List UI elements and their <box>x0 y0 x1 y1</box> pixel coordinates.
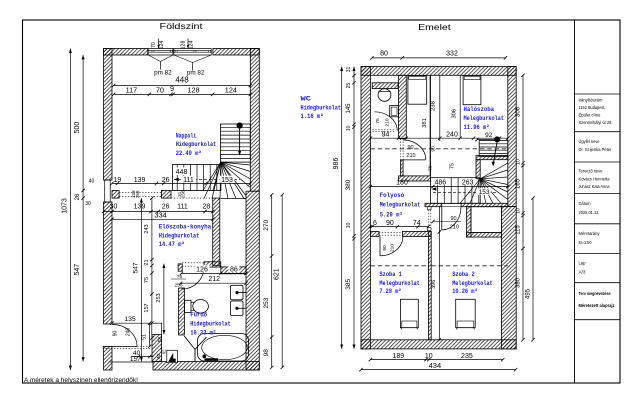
svg-text:98: 98 <box>263 349 270 357</box>
svg-text:500: 500 <box>74 122 81 134</box>
svg-text:75: 75 <box>144 277 150 283</box>
svg-text:180: 180 <box>396 179 408 186</box>
svg-text:256: 256 <box>181 190 186 198</box>
svg-text:Dr. Szijenka Péter: Dr. Szijenka Péter <box>579 147 612 152</box>
svg-text:A méretek a helyszínen ellenőr: A méretek a helyszínen ellenőrizendők! <box>24 377 138 384</box>
svg-text:111: 111 <box>177 203 188 210</box>
svg-text:157: 157 <box>144 303 150 312</box>
svg-text:111: 111 <box>183 177 194 184</box>
svg-text:WC: WC <box>301 95 312 102</box>
svg-text:Földszint: Földszint <box>160 21 204 31</box>
svg-text:139: 139 <box>134 203 146 210</box>
svg-text:210: 210 <box>390 244 396 252</box>
svg-text:51: 51 <box>142 334 148 340</box>
svg-text:Terv megnevezése: Terv megnevezése <box>579 291 611 296</box>
svg-text:26: 26 <box>162 203 170 210</box>
svg-text:5.29 m²: 5.29 m² <box>380 212 403 219</box>
svg-text:448: 448 <box>176 169 188 176</box>
svg-text:2025.01.13.: 2025.01.13. <box>579 210 600 215</box>
svg-text:210: 210 <box>450 225 459 231</box>
svg-text:A/3: A/3 <box>579 270 587 275</box>
svg-text:Hidegburkolat: Hidegburkolat <box>301 104 342 111</box>
svg-text:10: 10 <box>515 208 521 214</box>
svg-text:40: 40 <box>156 354 161 360</box>
svg-text:26: 26 <box>75 193 81 200</box>
svg-text:Lap: Lap <box>579 261 586 266</box>
svg-text:263: 263 <box>462 179 474 186</box>
svg-text:Melegburkolat: Melegburkolat <box>464 115 505 122</box>
svg-text:Juhász Kata Anna: Juhász Kata Anna <box>579 184 610 189</box>
svg-text:31: 31 <box>346 67 352 73</box>
svg-text:Dátum: Dátum <box>579 201 591 206</box>
svg-text:10: 10 <box>515 159 521 165</box>
svg-text:Hidegburkolat: Hidegburkolat <box>176 141 217 148</box>
svg-text:256: 256 <box>135 190 140 198</box>
svg-text:434: 434 <box>429 361 442 370</box>
svg-text:253: 253 <box>263 297 270 308</box>
svg-text:6: 6 <box>373 220 377 227</box>
svg-text:253: 253 <box>156 293 162 302</box>
svg-text:495: 495 <box>525 288 531 299</box>
svg-text:486: 486 <box>434 179 446 186</box>
svg-text:153: 153 <box>221 177 233 184</box>
svg-text:26: 26 <box>162 177 170 184</box>
svg-text:92: 92 <box>162 349 167 354</box>
svg-text:547: 547 <box>133 262 140 273</box>
svg-text:246: 246 <box>125 328 131 337</box>
svg-text:128: 128 <box>187 86 199 95</box>
svg-text:7.28 m²: 7.28 m² <box>379 288 401 295</box>
svg-text:Melegburkolat: Melegburkolat <box>379 280 420 287</box>
svg-text:Hidegburkolat: Hidegburkolat <box>159 232 200 239</box>
svg-text:124: 124 <box>188 41 194 50</box>
svg-text:1073: 1073 <box>62 198 69 214</box>
svg-text:124: 124 <box>225 86 237 95</box>
svg-text:Szoba 1: Szoba 1 <box>379 271 402 278</box>
svg-text:14.47 m²: 14.47 m² <box>159 241 185 248</box>
svg-text:334: 334 <box>154 211 167 220</box>
svg-text:Nappali: Nappali <box>176 133 197 140</box>
svg-text:306: 306 <box>452 109 458 119</box>
svg-text:74: 74 <box>413 220 421 227</box>
svg-text:124: 124 <box>159 41 165 50</box>
svg-text:94: 94 <box>382 131 390 138</box>
svg-text:86: 86 <box>230 267 238 274</box>
svg-text:19: 19 <box>114 177 122 184</box>
svg-text:165: 165 <box>515 178 521 189</box>
svg-text:621: 621 <box>274 268 281 280</box>
svg-text:Irányítószám: Irányítószám <box>579 98 603 103</box>
svg-text:212: 212 <box>208 276 220 283</box>
svg-text:28: 28 <box>203 203 211 210</box>
svg-text:75: 75 <box>375 118 381 124</box>
svg-text:70: 70 <box>151 42 157 48</box>
svg-text:Fürdő: Fürdő <box>190 312 207 319</box>
svg-text:986: 986 <box>333 158 340 170</box>
svg-text:90: 90 <box>407 145 413 151</box>
svg-text:380: 380 <box>345 179 352 190</box>
svg-text:55: 55 <box>428 165 434 171</box>
svg-text:128: 128 <box>181 41 187 50</box>
svg-text:30: 30 <box>85 201 91 207</box>
svg-text:11.96 m²: 11.96 m² <box>464 124 490 131</box>
svg-text:Szentmihályi út 29.: Szentmihályi út 29. <box>579 120 613 125</box>
svg-text:10: 10 <box>425 353 433 360</box>
svg-text:135: 135 <box>124 316 136 323</box>
svg-text:1.16 m²: 1.16 m² <box>301 113 324 120</box>
svg-text:385: 385 <box>345 278 352 289</box>
svg-text:90: 90 <box>430 146 436 152</box>
svg-text:Melegburkolat: Melegburkolat <box>452 280 493 287</box>
svg-text:58: 58 <box>158 337 164 343</box>
svg-text:270: 270 <box>263 219 270 230</box>
svg-text:9: 9 <box>170 84 174 93</box>
svg-text:117: 117 <box>126 86 138 95</box>
svg-text:90: 90 <box>382 245 388 251</box>
svg-text:126: 126 <box>196 267 208 274</box>
svg-text:10: 10 <box>346 125 352 131</box>
svg-text:90: 90 <box>113 331 119 337</box>
svg-text:70: 70 <box>156 86 164 95</box>
svg-text:380: 380 <box>515 277 521 288</box>
svg-text:75: 75 <box>449 163 455 169</box>
svg-text:40: 40 <box>89 179 95 185</box>
svg-text:396: 396 <box>431 280 437 289</box>
svg-text:90: 90 <box>386 220 394 227</box>
svg-text:Tervező neve: Tervező neve <box>579 169 603 174</box>
svg-text:pm 82: pm 82 <box>154 70 172 77</box>
svg-text:10.33 m²: 10.33 m² <box>190 330 216 337</box>
svg-text:Folyosó: Folyosó <box>380 192 405 199</box>
svg-text:210: 210 <box>385 118 391 126</box>
svg-text:448: 448 <box>175 76 189 85</box>
svg-text:25: 25 <box>346 83 352 89</box>
svg-text:381: 381 <box>422 118 428 128</box>
svg-text:Hálószoba: Hálószoba <box>464 106 495 113</box>
svg-text:10.26 m²: 10.26 m² <box>452 288 478 295</box>
svg-text:115: 115 <box>515 225 521 235</box>
svg-text:547: 547 <box>74 264 81 276</box>
svg-text:21: 21 <box>144 259 150 265</box>
svg-text:243: 243 <box>144 224 150 233</box>
svg-text:pm 82: pm 82 <box>187 70 205 77</box>
svg-text:10: 10 <box>346 222 352 228</box>
svg-text:Épület címe: Épület címe <box>579 112 601 118</box>
svg-text:306: 306 <box>515 106 521 117</box>
svg-text:145: 145 <box>346 103 352 114</box>
svg-text:1152 Budapest,: 1152 Budapest, <box>579 105 606 110</box>
svg-text:189: 189 <box>392 353 404 360</box>
svg-text:90: 90 <box>450 216 456 222</box>
svg-text:Hidegburkolat: Hidegburkolat <box>190 321 231 328</box>
svg-text:210: 210 <box>406 153 415 159</box>
svg-text:22.40 m²: 22.40 m² <box>176 150 202 157</box>
svg-text:Ügyfél neve: Ügyfél neve <box>579 138 600 144</box>
svg-text:240: 240 <box>446 131 458 138</box>
svg-text:M=1:50: M=1:50 <box>579 240 592 245</box>
svg-text:153: 153 <box>479 189 490 196</box>
svg-text:332: 332 <box>446 51 458 58</box>
svg-text:Méretarány: Méretarány <box>579 231 601 236</box>
svg-text:Szoba 2: Szoba 2 <box>452 271 475 278</box>
svg-text:30: 30 <box>110 203 118 210</box>
svg-text:Melegburkolat: Melegburkolat <box>380 202 421 209</box>
svg-text:Emelet: Emelet <box>418 22 451 32</box>
svg-text:238: 238 <box>431 101 437 111</box>
svg-text:80: 80 <box>380 51 388 58</box>
svg-text:235: 235 <box>461 353 473 360</box>
svg-text:Méretezett alaprajz: Méretezett alaprajz <box>579 303 616 308</box>
svg-text:Előszoba-konyha: Előszoba-konyha <box>159 224 212 231</box>
svg-text:Kovács Henrietta: Kovács Henrietta <box>579 177 610 182</box>
svg-text:139: 139 <box>134 177 146 184</box>
